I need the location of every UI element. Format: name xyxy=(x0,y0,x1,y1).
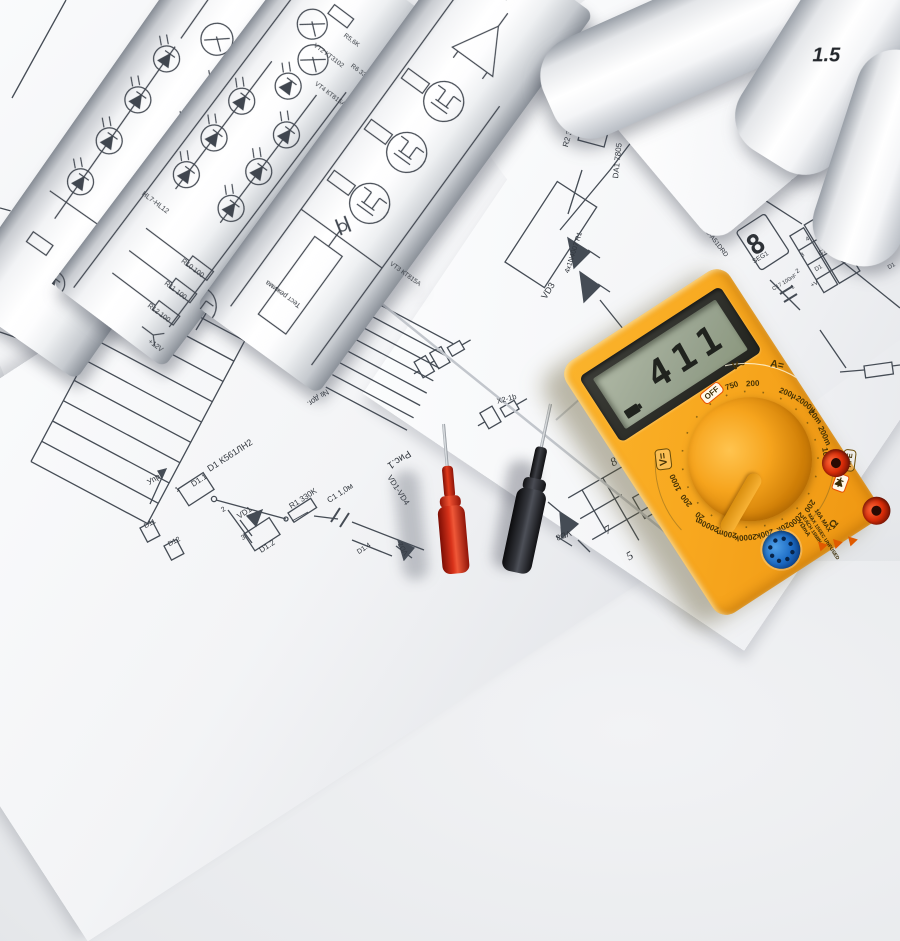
jack-hole xyxy=(869,504,883,518)
probe-grip xyxy=(437,505,470,575)
red-test-probe xyxy=(412,421,489,576)
probe-neck xyxy=(529,446,548,482)
probe-neck xyxy=(442,465,456,498)
dial-range[interactable]: 2000k xyxy=(734,532,757,543)
jack-hole xyxy=(829,456,843,470)
dial-dca-header: A= xyxy=(769,358,785,373)
photo-blueprints-and-multimeter: { "multimeter": { "display_value": "411"… xyxy=(0,0,900,561)
dial-range[interactable]: 200 xyxy=(746,379,760,389)
probe-grip xyxy=(501,486,548,575)
handwritten-note: 1.5 xyxy=(812,45,840,65)
dial-acv-header: V~ xyxy=(731,359,746,373)
probe-tip xyxy=(539,404,551,450)
dial-dcv-header: V= xyxy=(654,448,672,471)
probe-tip xyxy=(442,424,449,468)
